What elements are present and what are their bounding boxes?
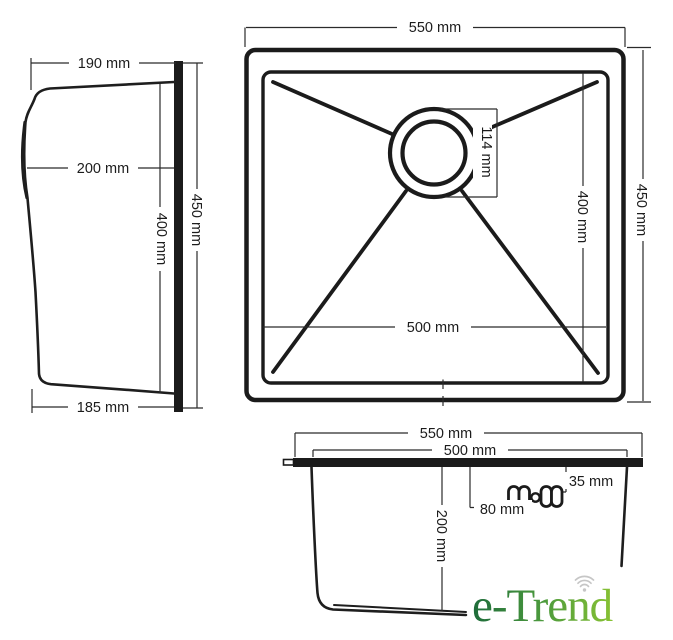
dim-label-450-top: 450 mm (633, 184, 649, 236)
dim-label-450-side: 450 mm (188, 194, 204, 246)
section-rim-lip (284, 460, 294, 466)
top-view: 550 mm 114 mm 400 mm 450 mm 500 mm (245, 19, 651, 406)
dim-label-200-section: 200 mm (433, 510, 449, 562)
knockout-center-hole (531, 493, 539, 501)
logo-text: e-Trend (472, 580, 613, 632)
dim-label-500-top: 500 mm (407, 320, 459, 336)
sink-technical-drawing: 190 mm 200 mm 400 mm 450 mm 185 mm (0, 0, 673, 640)
knockout-slot-4 (552, 487, 563, 507)
dim-label-190: 190 mm (78, 56, 130, 72)
dim-label-114: 114 mm (478, 126, 494, 177)
dim-label-500-section: 500 mm (444, 443, 496, 459)
top-view-outer-rim (247, 50, 624, 400)
dim-label-200-side: 200 mm (77, 161, 129, 177)
side-view-rim-bar (174, 61, 183, 412)
knockout-slot-3 (541, 487, 552, 507)
dim-label-400-side: 400 mm (153, 213, 169, 265)
section-right-wall (622, 467, 628, 566)
dim-label-35: 35 mm (569, 474, 613, 490)
dim-label-80: 80 mm (480, 502, 524, 518)
drain-inner-circle (403, 122, 466, 185)
brand-logo: e-Trend (472, 576, 613, 632)
section-rim-bar (293, 458, 643, 467)
dim-label-185: 185 mm (77, 400, 129, 416)
dim-label-550-section: 550 mm (420, 426, 472, 442)
side-view: 190 mm 200 mm 400 mm 450 mm 185 mm (22, 54, 204, 416)
dim-label-400-top: 400 mm (574, 191, 590, 243)
dim-label-550-top: 550 mm (409, 20, 461, 36)
